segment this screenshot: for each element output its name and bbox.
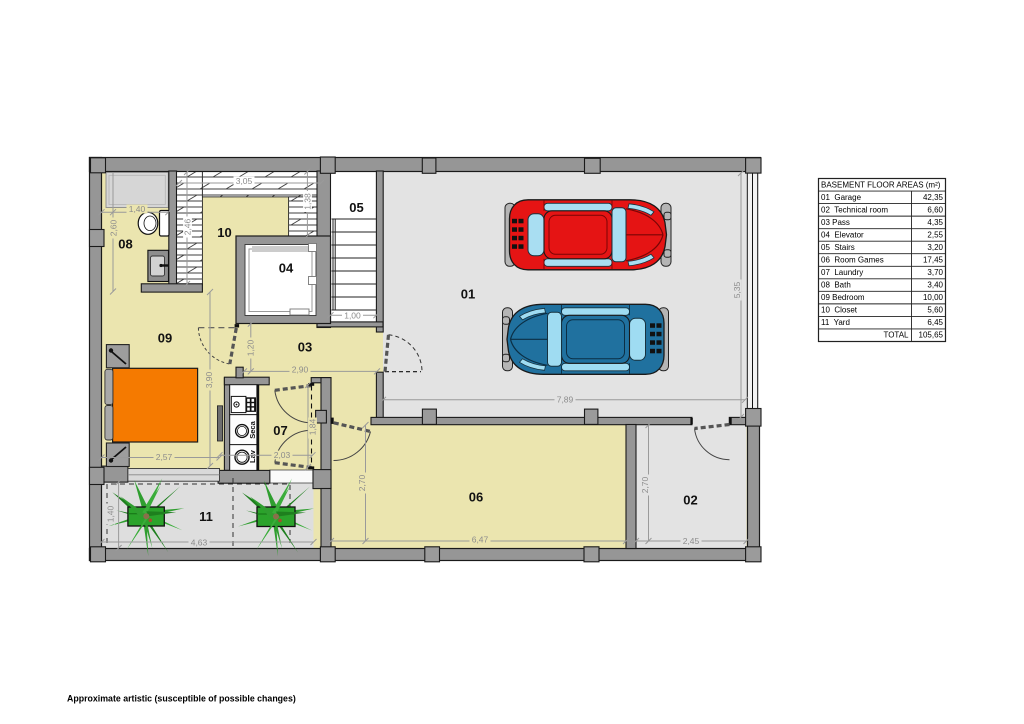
svg-text:1,84: 1,84 [308,418,318,435]
svg-text:3,20: 3,20 [927,243,943,252]
svg-text:2,45: 2,45 [683,536,700,546]
svg-text:6,45: 6,45 [927,318,943,327]
svg-text:2,57: 2,57 [156,452,173,462]
svg-text:42,35: 42,35 [923,193,944,202]
svg-text:08 Bath: 08 Bath [821,281,851,290]
svg-text:2,55: 2,55 [927,230,943,239]
svg-text:10 Closet: 10 Closet [821,306,858,315]
svg-text:05 Stairs: 05 Stairs [821,243,855,252]
svg-text:105,65: 105,65 [919,331,944,340]
svg-text:7,89: 7,89 [557,395,574,405]
svg-text:6,60: 6,60 [927,205,943,214]
svg-text:5,35: 5,35 [732,281,742,298]
svg-text:02 Technical room: 02 Technical room [821,205,888,214]
svg-text:3,70: 3,70 [927,268,943,277]
svg-text:06: 06 [469,490,483,505]
svg-text:2,90: 2,90 [292,365,309,375]
svg-text:1,20: 1,20 [246,339,256,356]
svg-text:08: 08 [118,237,132,252]
svg-text:4,35: 4,35 [927,218,943,227]
svg-text:03: 03 [298,340,312,355]
svg-text:01 Garage: 01 Garage [821,193,862,202]
svg-text:10: 10 [217,225,231,240]
svg-text:TOTAL: TOTAL [883,331,909,340]
svg-text:1,40: 1,40 [129,204,146,214]
svg-text:Approximate artistic (suscepti: Approximate artistic (susceptible of pos… [67,694,296,704]
svg-text:07 Laundry: 07 Laundry [821,268,863,277]
svg-text:2,70: 2,70 [357,474,367,491]
svg-text:1,00: 1,00 [344,310,361,320]
svg-text:BASEMENT FLOOR AREAS (m²): BASEMENT FLOOR AREAS (m²) [821,180,941,189]
svg-text:11 Yard: 11 Yard [821,318,850,327]
svg-text:17,45: 17,45 [923,256,944,265]
svg-text:01: 01 [461,287,475,302]
svg-text:2,70: 2,70 [640,476,650,493]
svg-text:Lav: Lav [248,449,257,463]
svg-text:3,05: 3,05 [236,176,253,186]
svg-text:09: 09 [158,331,172,346]
svg-text:3,90: 3,90 [204,371,214,388]
svg-text:02: 02 [683,493,697,508]
svg-text:6,47: 6,47 [472,535,489,545]
svg-text:4,63: 4,63 [191,538,208,548]
svg-text:04: 04 [279,261,294,276]
svg-text:1,38: 1,38 [303,193,313,210]
svg-text:03 Pass: 03 Pass [821,218,850,227]
svg-text:05: 05 [349,200,363,215]
svg-text:10,00: 10,00 [923,293,944,302]
svg-text:2,03: 2,03 [274,450,291,460]
svg-text:1,40: 1,40 [106,505,116,522]
svg-text:09 Bedroom: 09 Bedroom [821,293,865,302]
svg-text:Seca: Seca [248,420,257,438]
svg-text:2,46: 2,46 [183,218,193,235]
svg-text:3,40: 3,40 [927,281,943,290]
svg-text:5,60: 5,60 [927,306,943,315]
svg-text:07: 07 [273,423,287,438]
svg-text:04 Elevator: 04 Elevator [821,230,864,239]
svg-text:11: 11 [199,509,213,524]
svg-text:2,60: 2,60 [109,219,119,236]
svg-text:06 Room Games: 06 Room Games [821,256,884,265]
